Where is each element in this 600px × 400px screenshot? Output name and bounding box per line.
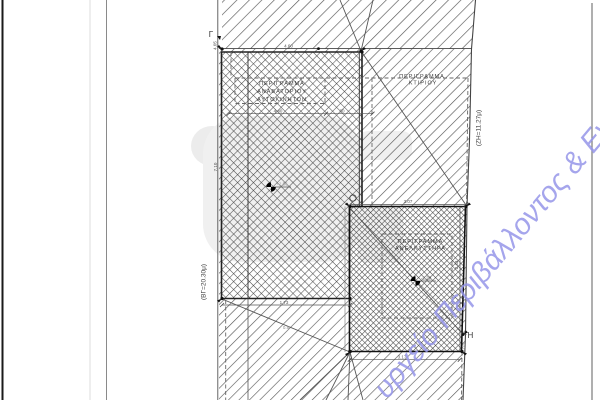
svg-text:2.43: 2.43: [454, 260, 459, 269]
svg-text:4.05: 4.05: [213, 41, 218, 50]
svg-text:3.07: 3.07: [404, 199, 413, 204]
svg-text:80: 80: [339, 109, 345, 114]
svg-text:0.5: 0.5: [462, 343, 466, 348]
svg-text:0.8: 0.8: [283, 325, 290, 330]
svg-text:Γ: Γ: [209, 30, 214, 39]
svg-text:ΠΕΡΙΓΡΑΜΜΑ: ΠΕΡΙΓΡΑΜΜΑ: [399, 74, 445, 80]
svg-text:4.40: 4.40: [274, 109, 283, 114]
svg-text:+2.56: +2.56: [276, 182, 288, 187]
svg-text:ΠΕΡΙΓΡΑΜΜΑ: ΠΕΡΙΓΡΑΜΜΑ: [259, 81, 305, 87]
svg-text:(ΒΓ=20.30μ): (ΒΓ=20.30μ): [201, 264, 208, 300]
svg-text:7.10: 7.10: [213, 162, 218, 171]
svg-text:(ΖΗ=11.27μ): (ΖΗ=11.27μ): [476, 110, 483, 146]
svg-text:ΠΕΡΙΓΡΑΜΜΑ: ΠΕΡΙΓΡΑΜΜΑ: [398, 239, 444, 245]
svg-text:1.73: 1.73: [280, 300, 289, 305]
svg-text:ΑΝΕΛΚΥΣΤΗΡΑ: ΑΝΕΛΚΥΣΤΗΡΑ: [395, 246, 446, 252]
svg-text:-2.20: -2.20: [421, 276, 432, 281]
svg-text:ΑΥΤΟΚΙΝΗΤΩΝ: ΑΥΤΟΚΙΝΗΤΩΝ: [257, 97, 307, 103]
svg-text:4.60: 4.60: [284, 44, 293, 49]
svg-text:ΑΝΑΒΑΤΟΡΙΟΥ: ΑΝΑΒΑΤΟΡΙΟΥ: [257, 89, 307, 95]
svg-text:H: H: [468, 331, 474, 340]
svg-text:ΚΤΙΡΙΟΥ: ΚΤΙΡΙΟΥ: [409, 81, 438, 87]
